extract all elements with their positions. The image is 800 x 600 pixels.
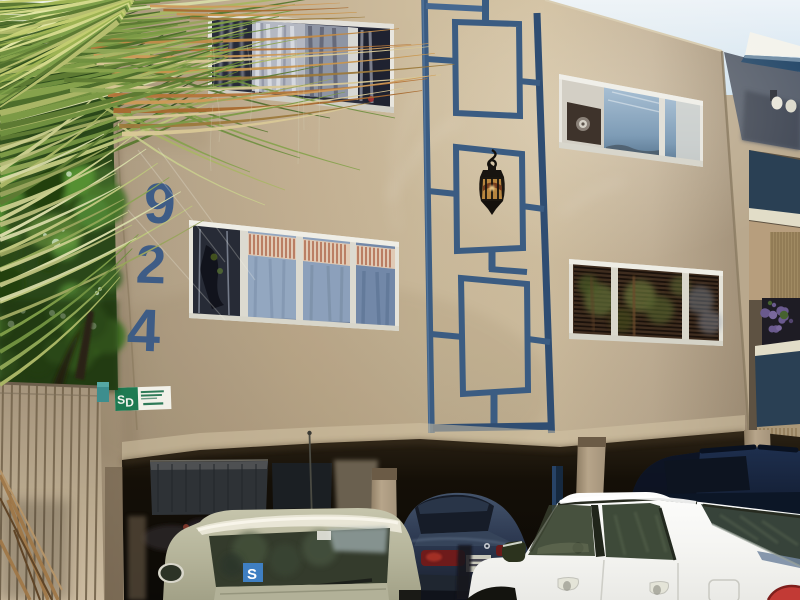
- svg-text:4: 4: [126, 296, 162, 364]
- svg-text:D: D: [125, 395, 134, 409]
- svg-text:S: S: [247, 566, 257, 583]
